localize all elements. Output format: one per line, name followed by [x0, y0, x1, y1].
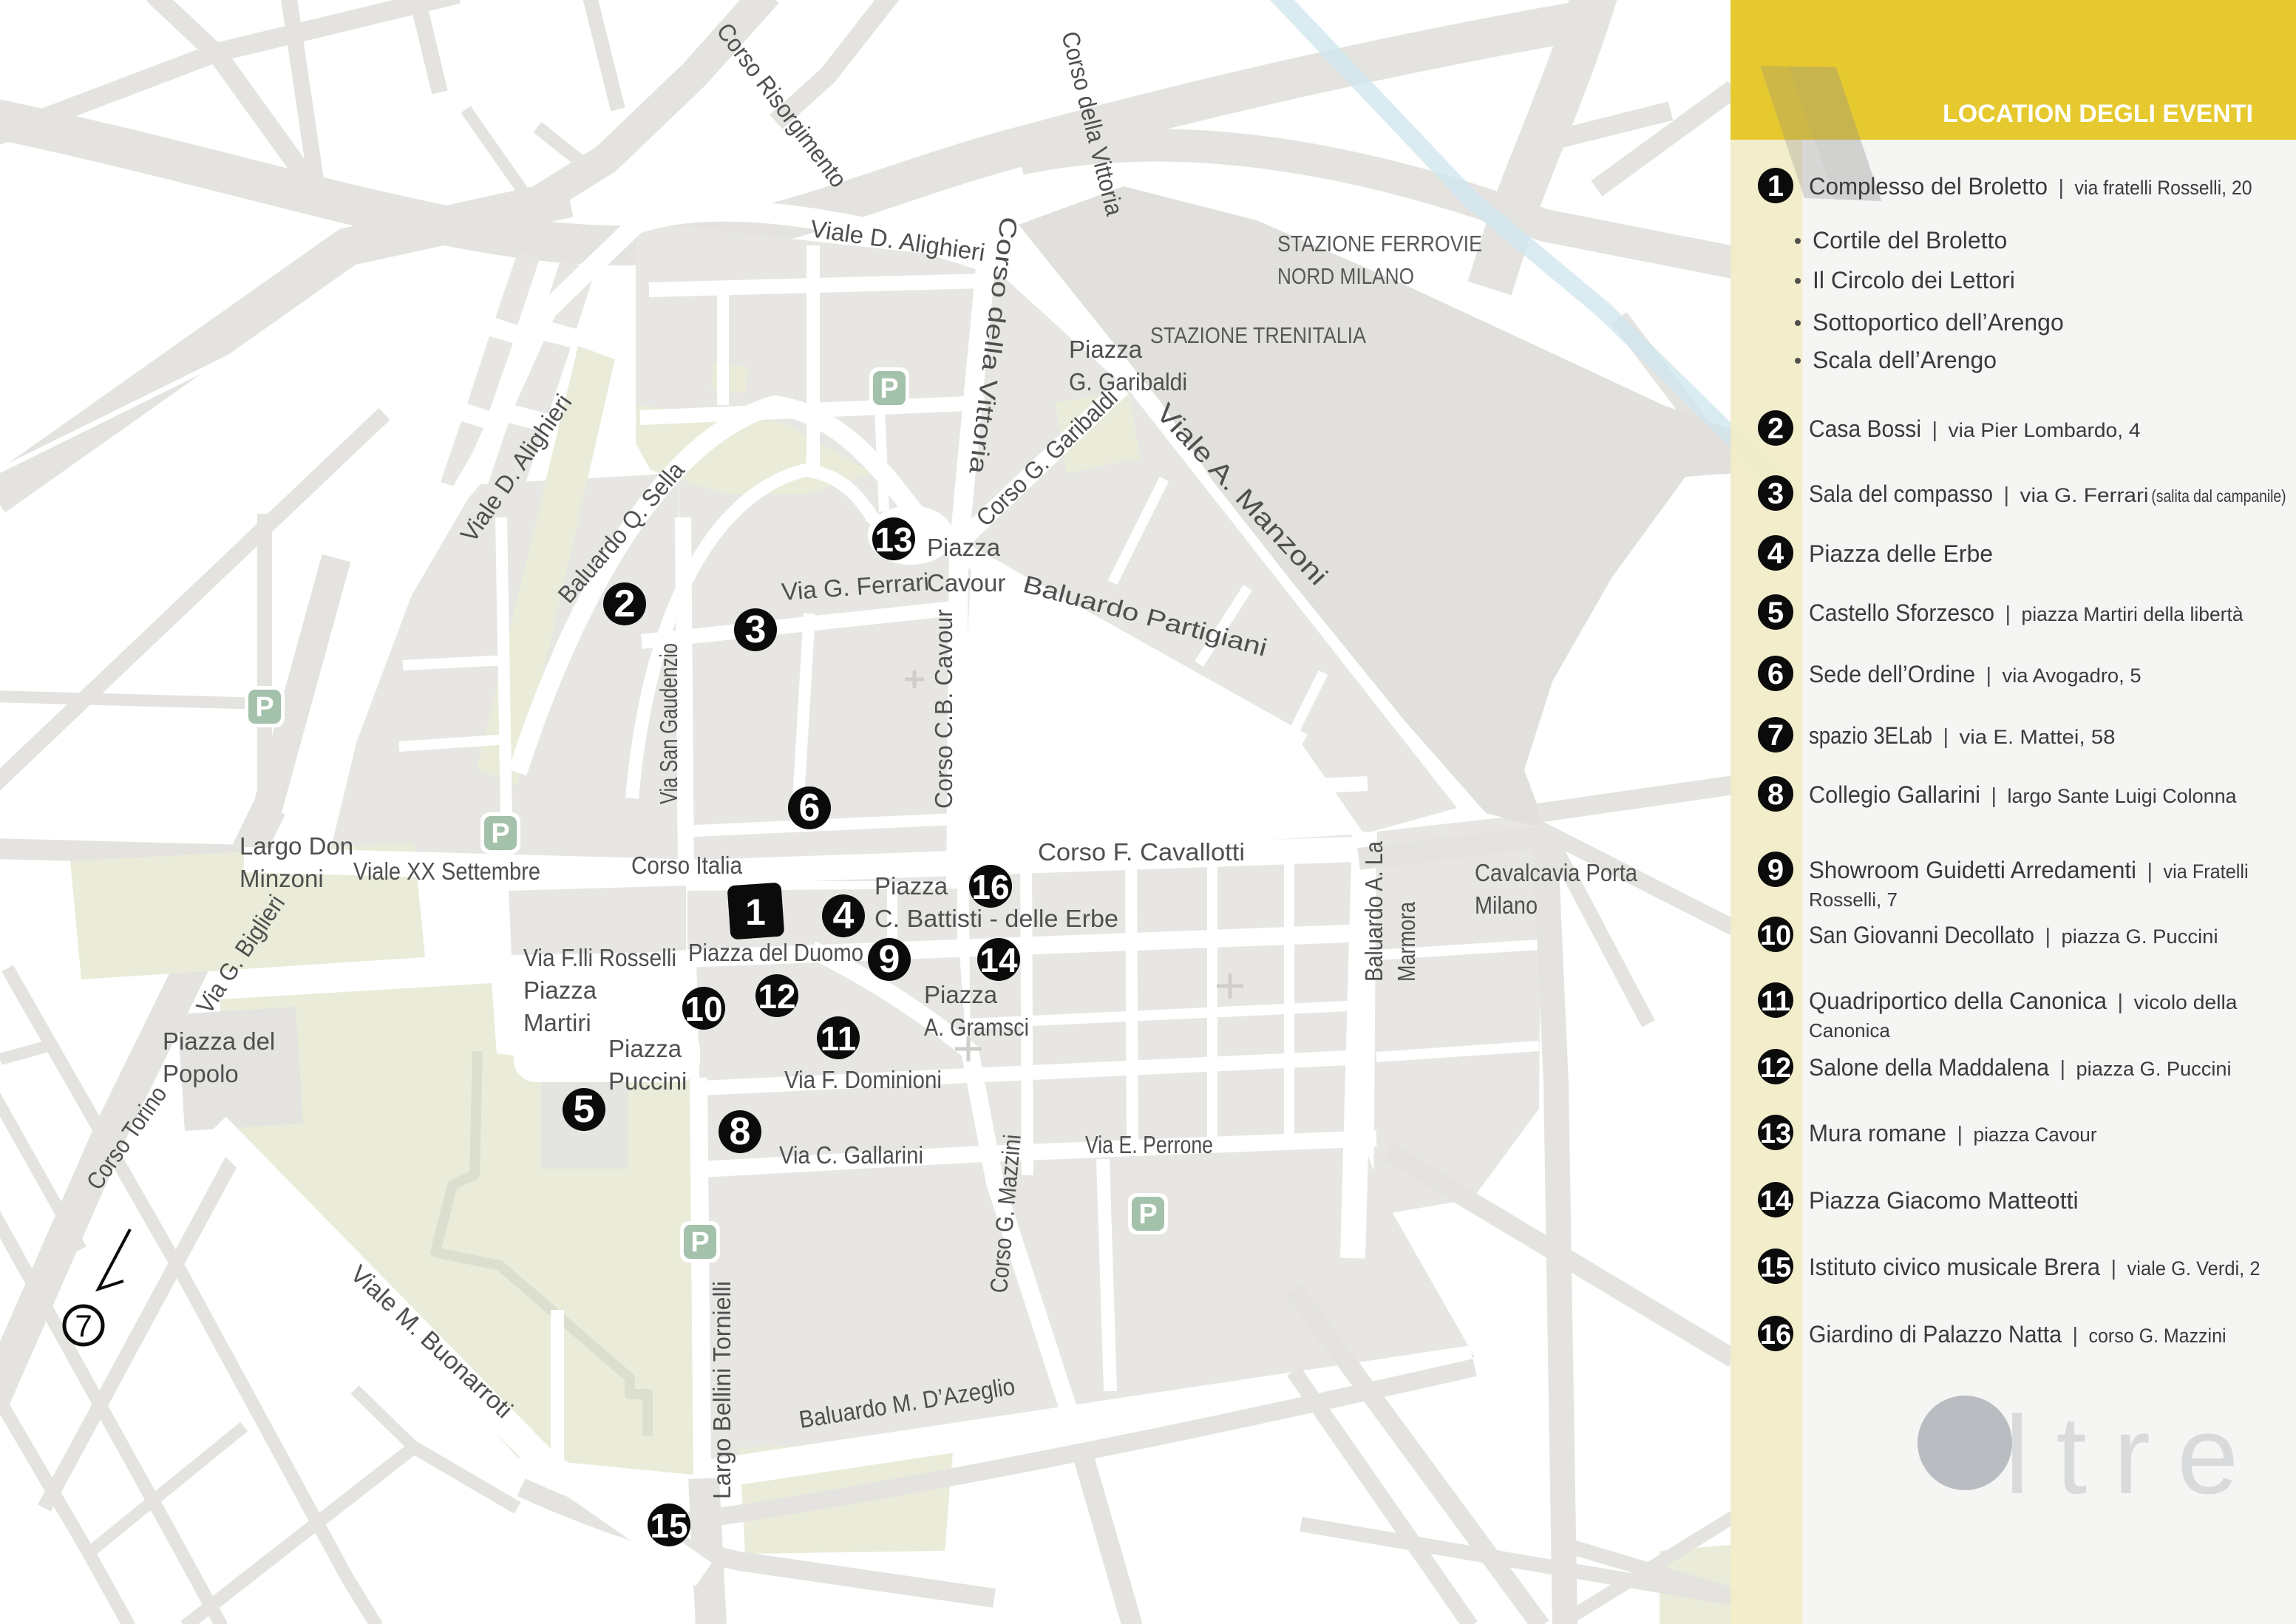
svg-text:Corso C.B. Cavour: Corso C.B. Cavour	[930, 609, 957, 809]
svg-text:Largo Bellini Tornielli: Largo Bellini Tornielli	[708, 1281, 736, 1499]
svg-text:Canonica: Canonica	[1809, 1019, 1890, 1042]
svg-text:6: 6	[799, 786, 821, 829]
svg-text:Via C. Gallarini: Via C. Gallarini	[779, 1141, 923, 1169]
svg-text:P: P	[255, 692, 274, 723]
svg-text:Via F.lli Rosselli: Via F.lli Rosselli	[523, 944, 676, 971]
svg-text:Minzoni: Minzoni	[240, 865, 324, 892]
svg-text:STAZIONE FERROVIE: STAZIONE FERROVIE	[1277, 231, 1482, 256]
svg-text:San Giovanni Decollato | piazz: San Giovanni Decollato | piazza G. Pucci…	[1809, 922, 2218, 948]
svg-text:12: 12	[758, 977, 795, 1016]
svg-text:Corso F. Cavallotti: Corso F. Cavallotti	[1038, 838, 1245, 866]
svg-text:ltre: ltre	[2005, 1393, 2265, 1517]
svg-text:16: 16	[971, 868, 1009, 906]
svg-text:15: 15	[650, 1506, 687, 1545]
svg-text:6: 6	[1767, 658, 1784, 690]
svg-text:Piazza: Piazza	[1069, 336, 1143, 363]
svg-text:Marmora: Marmora	[1393, 901, 1420, 982]
svg-text:Piazza: Piazza	[924, 981, 998, 1008]
svg-text:Corso Italia: Corso Italia	[631, 852, 743, 879]
svg-text:10: 10	[1760, 920, 1791, 951]
svg-text:Complesso del Broletto | via f: Complesso del Broletto | via fratelli Ro…	[1809, 173, 2252, 200]
svg-text:11: 11	[1761, 986, 1790, 1017]
svg-text:Piazza: Piazza	[874, 872, 948, 900]
svg-text:9: 9	[1767, 854, 1784, 886]
svg-text:13: 13	[1760, 1118, 1791, 1149]
svg-text:4: 4	[1767, 537, 1784, 570]
svg-text:P: P	[491, 818, 509, 849]
svg-text:Quadriportico della Canonica |: Quadriportico della Canonica | vicolo de…	[1809, 988, 2238, 1014]
svg-text:P: P	[1138, 1199, 1157, 1230]
svg-text:Piazza Giacomo Matteotti: Piazza Giacomo Matteotti	[1809, 1187, 2079, 1214]
svg-text:Baluardo A. La: Baluardo A. La	[1360, 840, 1388, 982]
svg-text:A. Gramsci: A. Gramsci	[924, 1013, 1029, 1041]
svg-text:Collegio Gallarini | largo San: Collegio Gallarini | largo Sante Luigi C…	[1809, 781, 2238, 808]
svg-text:Cavalcavia Porta: Cavalcavia Porta	[1475, 859, 1638, 886]
svg-text:Showroom Guidetti Arredamenti: Showroom Guidetti Arredamenti | via Frat…	[1809, 857, 2249, 883]
svg-text:2: 2	[614, 582, 636, 625]
svg-text:11: 11	[821, 1019, 857, 1058]
svg-text:Sottoportico dell’Arengo: Sottoportico dell’Arengo	[1813, 309, 2064, 336]
svg-text:14: 14	[1760, 1186, 1791, 1217]
svg-text:4: 4	[833, 894, 855, 937]
svg-text:NORD MILANO: NORD MILANO	[1277, 263, 1414, 289]
svg-text:3: 3	[745, 608, 767, 651]
svg-text:8: 8	[730, 1110, 751, 1153]
svg-text:Scala dell’Arengo: Scala dell’Arengo	[1813, 347, 1997, 373]
svg-text:Salone della Maddalena | piazz: Salone della Maddalena | piazza G. Pucci…	[1809, 1054, 2232, 1081]
svg-text:Rosselli, 7: Rosselli, 7	[1809, 889, 1898, 911]
svg-text:1: 1	[745, 891, 766, 933]
svg-text:Cavour: Cavour	[927, 569, 1005, 597]
svg-text:5: 5	[1767, 597, 1784, 629]
svg-text:1: 1	[1767, 170, 1784, 203]
svg-text:Viale XX Settembre: Viale XX Settembre	[353, 857, 540, 885]
svg-text:3: 3	[1767, 478, 1784, 510]
svg-text:Istituto civico musicale Brera: Istituto civico musicale Brera | viale G…	[1809, 1254, 2261, 1280]
svg-text:Il Circolo dei Lettori: Il Circolo dei Lettori	[1813, 267, 2015, 293]
svg-text:Popolo: Popolo	[163, 1060, 239, 1087]
svg-text:Piazza del Duomo: Piazza del Duomo	[688, 939, 863, 966]
svg-text:10: 10	[685, 990, 722, 1028]
svg-text:Milano: Milano	[1475, 891, 1538, 919]
svg-text:C. Battisti - delle Erbe: C. Battisti - delle Erbe	[874, 905, 1118, 932]
svg-text:G. Garibaldi: G. Garibaldi	[1069, 368, 1187, 395]
svg-text:Piazza: Piazza	[927, 534, 1001, 561]
svg-text:LOCATION DEGLI EVENTI: LOCATION DEGLI EVENTI	[1943, 100, 2253, 128]
svg-text:Sede dell’Ordine | via Avogadr: Sede dell’Ordine | via Avogadro, 5	[1809, 661, 2142, 687]
svg-text:Piazza del: Piazza del	[163, 1027, 275, 1055]
svg-text:Martiri: Martiri	[523, 1009, 591, 1036]
svg-text:Cortile del Broletto: Cortile del Broletto	[1813, 227, 2007, 254]
svg-text:13: 13	[874, 520, 912, 559]
svg-text:STAZIONE TRENITALIA: STAZIONE TRENITALIA	[1150, 322, 1366, 348]
svg-text:7: 7	[1767, 719, 1784, 752]
svg-text:Piazza delle Erbe: Piazza delle Erbe	[1809, 540, 1993, 567]
svg-text:12: 12	[1760, 1053, 1791, 1084]
svg-text:Casa Bossi | via Pier Lombardo: Casa Bossi | via Pier Lombardo, 4	[1809, 415, 2141, 442]
svg-text:7: 7	[75, 1308, 92, 1343]
svg-text:16: 16	[1760, 1319, 1791, 1350]
svg-text:spazio 3ELab | via E. Mattei,: spazio 3ELab | via E. Mattei, 58	[1809, 722, 2116, 749]
svg-text:P: P	[880, 373, 898, 404]
svg-text:Via San Gaudenzio: Via San Gaudenzio	[655, 643, 682, 804]
svg-text:5: 5	[574, 1088, 595, 1131]
svg-text:Largo Don: Largo Don	[240, 832, 353, 860]
svg-text:9: 9	[879, 938, 900, 981]
svg-text:Via E. Perrone: Via E. Perrone	[1085, 1131, 1213, 1158]
svg-text:Puccini: Puccini	[608, 1067, 687, 1095]
svg-text:Castello Sforzesco | piazza Ma: Castello Sforzesco | piazza Martiri dell…	[1809, 599, 2244, 626]
svg-text:Piazza: Piazza	[608, 1035, 682, 1062]
svg-text:2: 2	[1767, 412, 1784, 445]
svg-text:Piazza: Piazza	[523, 976, 597, 1004]
svg-text:P: P	[690, 1227, 709, 1258]
svg-text:Mura romane | piazza Cavour: Mura romane | piazza Cavour	[1809, 1120, 2097, 1146]
svg-text:Via F. Dominioni: Via F. Dominioni	[784, 1066, 942, 1093]
svg-text:15: 15	[1760, 1252, 1791, 1283]
svg-text:Giardino di Palazzo Natta | co: Giardino di Palazzo Natta | corso G. Maz…	[1809, 1321, 2227, 1348]
svg-text:14: 14	[979, 941, 1018, 979]
svg-text:8: 8	[1767, 778, 1784, 811]
